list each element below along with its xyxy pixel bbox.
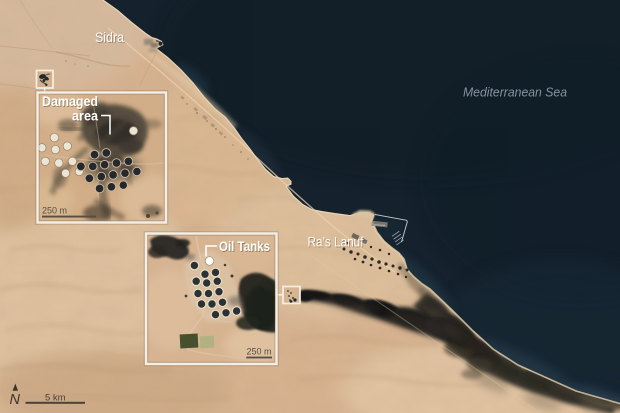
svg-text:250 m: 250 m (246, 347, 271, 357)
svg-text:5 km: 5 km (45, 393, 66, 404)
svg-text:Mediterranean Sea: Mediterranean Sea (463, 85, 567, 100)
svg-text:Ra’s Lanuf: Ra’s Lanuf (308, 234, 364, 250)
svg-text:250 m: 250 m (42, 206, 67, 216)
svg-text:Sidra: Sidra (95, 29, 124, 45)
svg-text:Oil Tanks: Oil Tanks (219, 238, 270, 254)
svg-text:N: N (10, 392, 21, 408)
svg-text:area: area (72, 108, 98, 124)
